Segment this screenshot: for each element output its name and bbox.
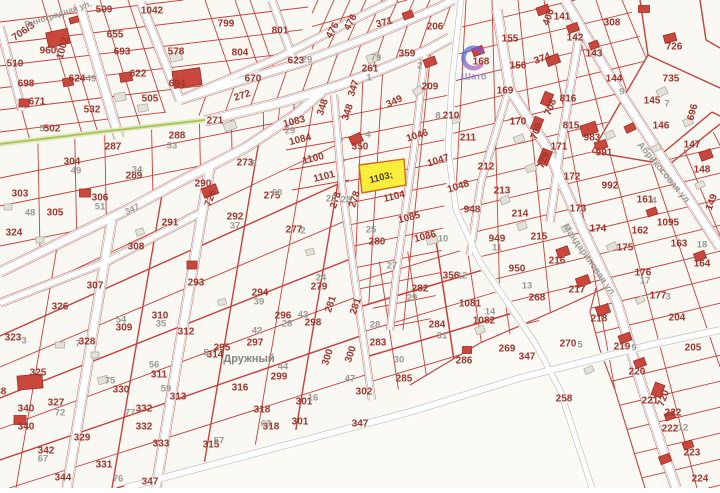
svg-text:47: 47 xyxy=(345,373,356,384)
svg-text:28: 28 xyxy=(370,319,381,330)
svg-text:532: 532 xyxy=(84,105,101,116)
svg-text:13: 13 xyxy=(522,280,533,291)
svg-text:219: 219 xyxy=(614,342,631,353)
svg-text:302: 302 xyxy=(356,387,373,398)
svg-text:815: 815 xyxy=(563,121,580,132)
svg-text:12: 12 xyxy=(678,422,689,433)
svg-text:303: 303 xyxy=(12,189,29,200)
svg-text:338: 338 xyxy=(0,387,7,398)
svg-text:33: 33 xyxy=(167,140,178,151)
svg-text:173: 173 xyxy=(570,204,587,215)
svg-text:172: 172 xyxy=(564,172,581,183)
svg-text:307: 307 xyxy=(87,281,104,292)
svg-text:297: 297 xyxy=(247,338,264,349)
svg-text:54: 54 xyxy=(116,314,127,325)
svg-text:170: 170 xyxy=(510,117,527,128)
svg-text:43: 43 xyxy=(298,309,309,320)
svg-text:37: 37 xyxy=(230,220,241,231)
svg-text:142: 142 xyxy=(567,33,584,44)
svg-text:42: 42 xyxy=(252,325,263,336)
svg-text:299: 299 xyxy=(271,372,288,383)
svg-text:301: 301 xyxy=(292,417,309,428)
svg-text:344: 344 xyxy=(55,473,72,484)
svg-text:162: 162 xyxy=(632,226,649,237)
svg-text:177: 177 xyxy=(650,291,667,302)
svg-text:284: 284 xyxy=(429,320,446,331)
svg-text:286: 286 xyxy=(456,356,473,367)
svg-text:2: 2 xyxy=(300,225,305,236)
svg-text:25: 25 xyxy=(366,224,377,235)
svg-text:39: 39 xyxy=(254,296,265,307)
svg-text:694: 694 xyxy=(169,79,186,90)
svg-text:280: 280 xyxy=(369,237,386,248)
svg-text:67: 67 xyxy=(38,453,49,464)
svg-text:308: 308 xyxy=(128,242,145,253)
svg-text:1095: 1095 xyxy=(657,218,680,229)
svg-text:44: 44 xyxy=(278,361,289,372)
svg-text:209: 209 xyxy=(422,82,439,93)
svg-text:223: 223 xyxy=(684,448,701,459)
svg-text:23: 23 xyxy=(341,194,352,205)
svg-text:804: 804 xyxy=(232,48,249,59)
svg-text:270: 270 xyxy=(560,339,577,350)
svg-text:948: 948 xyxy=(464,205,481,216)
svg-text:31: 31 xyxy=(437,330,448,341)
svg-text:169: 169 xyxy=(497,86,514,97)
svg-text:311: 311 xyxy=(151,370,168,381)
svg-text:7: 7 xyxy=(75,338,80,349)
svg-text:347: 347 xyxy=(142,477,159,488)
svg-text:359: 359 xyxy=(399,49,416,60)
svg-text:146: 146 xyxy=(653,121,670,132)
svg-text:325: 325 xyxy=(30,368,47,379)
svg-text:991: 991 xyxy=(596,148,613,159)
svg-text:34: 34 xyxy=(132,164,143,175)
svg-text:218: 218 xyxy=(591,314,608,325)
svg-text:950: 950 xyxy=(509,264,526,275)
svg-text:145: 145 xyxy=(644,96,661,107)
svg-text:332: 332 xyxy=(136,422,153,433)
svg-text:18: 18 xyxy=(697,239,708,250)
svg-text:992: 992 xyxy=(602,181,619,192)
svg-text:171: 171 xyxy=(551,142,568,153)
svg-text:2: 2 xyxy=(417,60,422,71)
svg-text:29: 29 xyxy=(302,54,313,65)
svg-text:305: 305 xyxy=(47,208,64,219)
svg-text:505: 505 xyxy=(142,94,159,105)
svg-text:318: 318 xyxy=(254,405,271,416)
svg-text:14: 14 xyxy=(485,306,496,317)
svg-text:269: 269 xyxy=(499,344,516,355)
svg-text:Шато: Шато xyxy=(461,72,486,83)
svg-text:331: 331 xyxy=(96,460,113,471)
svg-text:175: 175 xyxy=(617,243,634,254)
svg-text:283: 283 xyxy=(370,338,387,349)
svg-text:671: 671 xyxy=(29,97,46,108)
svg-text:313: 313 xyxy=(170,392,187,403)
svg-text:29: 29 xyxy=(407,292,418,303)
svg-text:211: 211 xyxy=(460,133,477,144)
svg-text:333: 333 xyxy=(153,439,170,450)
svg-text:328: 328 xyxy=(79,337,96,348)
svg-text:324: 324 xyxy=(6,228,23,239)
svg-text:205: 205 xyxy=(685,343,702,354)
svg-text:206: 206 xyxy=(427,22,444,33)
svg-text:49: 49 xyxy=(86,73,97,84)
svg-text:7: 7 xyxy=(664,98,669,109)
svg-text:622: 622 xyxy=(130,69,147,80)
svg-text:143: 143 xyxy=(586,49,603,60)
svg-text:222: 222 xyxy=(662,424,679,435)
svg-text:216: 216 xyxy=(549,256,566,267)
svg-text:258: 258 xyxy=(556,394,573,405)
svg-text:51: 51 xyxy=(95,201,106,212)
svg-text:174: 174 xyxy=(590,224,607,235)
svg-text:340: 340 xyxy=(18,422,35,433)
svg-text:10: 10 xyxy=(438,233,449,244)
svg-text:1081: 1081 xyxy=(459,299,482,310)
svg-text:12: 12 xyxy=(457,270,468,281)
svg-text:217: 217 xyxy=(569,285,586,296)
svg-text:4: 4 xyxy=(365,129,371,140)
svg-text:510: 510 xyxy=(7,59,24,70)
svg-text:799: 799 xyxy=(218,19,235,30)
svg-text:801: 801 xyxy=(272,26,289,37)
svg-text:509: 509 xyxy=(96,5,113,16)
svg-text:72: 72 xyxy=(55,407,66,418)
svg-text:11: 11 xyxy=(492,242,503,253)
svg-text:56: 56 xyxy=(149,359,160,370)
svg-text:156: 156 xyxy=(510,61,527,72)
svg-text:983: 983 xyxy=(584,133,601,144)
svg-text:214: 214 xyxy=(512,209,529,220)
svg-text:735: 735 xyxy=(663,74,680,85)
svg-text:285: 285 xyxy=(396,374,413,385)
svg-text:24: 24 xyxy=(316,272,327,283)
svg-text:312: 312 xyxy=(178,327,195,338)
svg-text:326: 326 xyxy=(52,302,69,313)
svg-text:155: 155 xyxy=(502,34,519,45)
svg-text:28: 28 xyxy=(282,318,293,329)
svg-text:314: 314 xyxy=(207,350,224,361)
svg-text:3: 3 xyxy=(21,335,26,346)
svg-text:316: 316 xyxy=(232,383,249,394)
svg-text:323: 323 xyxy=(5,333,22,344)
svg-text:340: 340 xyxy=(18,404,35,415)
svg-text:8: 8 xyxy=(251,158,256,169)
svg-text:624: 624 xyxy=(69,74,86,85)
svg-text:350: 350 xyxy=(352,142,369,153)
svg-text:168: 168 xyxy=(473,57,490,68)
svg-text:502: 502 xyxy=(44,124,61,135)
svg-text:3: 3 xyxy=(665,291,670,302)
svg-text:204: 204 xyxy=(669,313,686,324)
svg-text:332: 332 xyxy=(136,404,153,415)
svg-text:693: 693 xyxy=(114,47,131,58)
svg-text:4: 4 xyxy=(651,195,657,206)
svg-text:655: 655 xyxy=(107,30,124,41)
svg-text:141: 141 xyxy=(554,12,571,23)
svg-text:224: 224 xyxy=(692,474,709,485)
svg-text:164: 164 xyxy=(694,259,711,270)
svg-text:17: 17 xyxy=(640,275,651,286)
svg-text:213: 213 xyxy=(494,186,511,197)
svg-text:76: 76 xyxy=(113,473,124,484)
svg-text:30: 30 xyxy=(394,354,405,365)
svg-text:1: 1 xyxy=(366,72,372,83)
svg-text:9: 9 xyxy=(619,86,624,97)
svg-text:27: 27 xyxy=(387,260,398,271)
svg-text:670: 670 xyxy=(245,74,262,85)
svg-text:816: 816 xyxy=(560,94,577,105)
svg-text:5: 5 xyxy=(577,339,583,350)
svg-text:77: 77 xyxy=(125,407,136,418)
svg-text:268: 268 xyxy=(529,293,546,304)
svg-text:210: 210 xyxy=(443,111,460,122)
svg-text:48: 48 xyxy=(25,207,36,218)
svg-text:147: 147 xyxy=(684,140,701,151)
svg-text:63: 63 xyxy=(261,418,272,429)
svg-text:1042: 1042 xyxy=(141,6,164,17)
svg-text:215: 215 xyxy=(531,232,548,243)
svg-text:290: 290 xyxy=(195,179,212,190)
svg-text:8: 8 xyxy=(435,110,440,121)
svg-text:75: 75 xyxy=(105,375,116,386)
svg-text:329: 329 xyxy=(74,433,91,444)
svg-text:220: 220 xyxy=(629,367,646,378)
svg-text:726: 726 xyxy=(666,42,683,53)
svg-text:23: 23 xyxy=(326,193,337,204)
svg-text:698: 698 xyxy=(18,79,35,90)
svg-text:16: 16 xyxy=(308,392,319,403)
svg-text:9: 9 xyxy=(631,342,636,353)
svg-text:49: 49 xyxy=(71,165,82,176)
svg-text:60: 60 xyxy=(272,187,283,198)
svg-text:287: 287 xyxy=(105,142,122,153)
svg-text:Дружный: Дружный xyxy=(223,353,274,365)
svg-text:144: 144 xyxy=(606,74,623,85)
svg-text:212: 212 xyxy=(478,162,495,173)
svg-text:960: 960 xyxy=(40,46,57,57)
svg-text:163: 163 xyxy=(671,239,688,250)
svg-text:291: 291 xyxy=(162,218,179,229)
svg-text:222: 222 xyxy=(665,408,682,419)
svg-text:29: 29 xyxy=(285,125,296,136)
svg-text:148: 148 xyxy=(694,165,711,176)
svg-text:347: 347 xyxy=(519,352,536,363)
svg-text:5: 5 xyxy=(203,347,209,358)
svg-text:293: 293 xyxy=(188,278,205,289)
svg-text:57: 57 xyxy=(214,435,225,446)
svg-text:308: 308 xyxy=(604,18,621,29)
svg-text:35: 35 xyxy=(156,318,167,329)
svg-text:59: 59 xyxy=(161,383,172,394)
svg-text:79: 79 xyxy=(371,52,382,63)
svg-text:578: 578 xyxy=(168,47,185,58)
svg-text:271: 271 xyxy=(207,116,224,127)
svg-text:5: 5 xyxy=(39,123,45,134)
svg-text:347: 347 xyxy=(352,419,369,430)
